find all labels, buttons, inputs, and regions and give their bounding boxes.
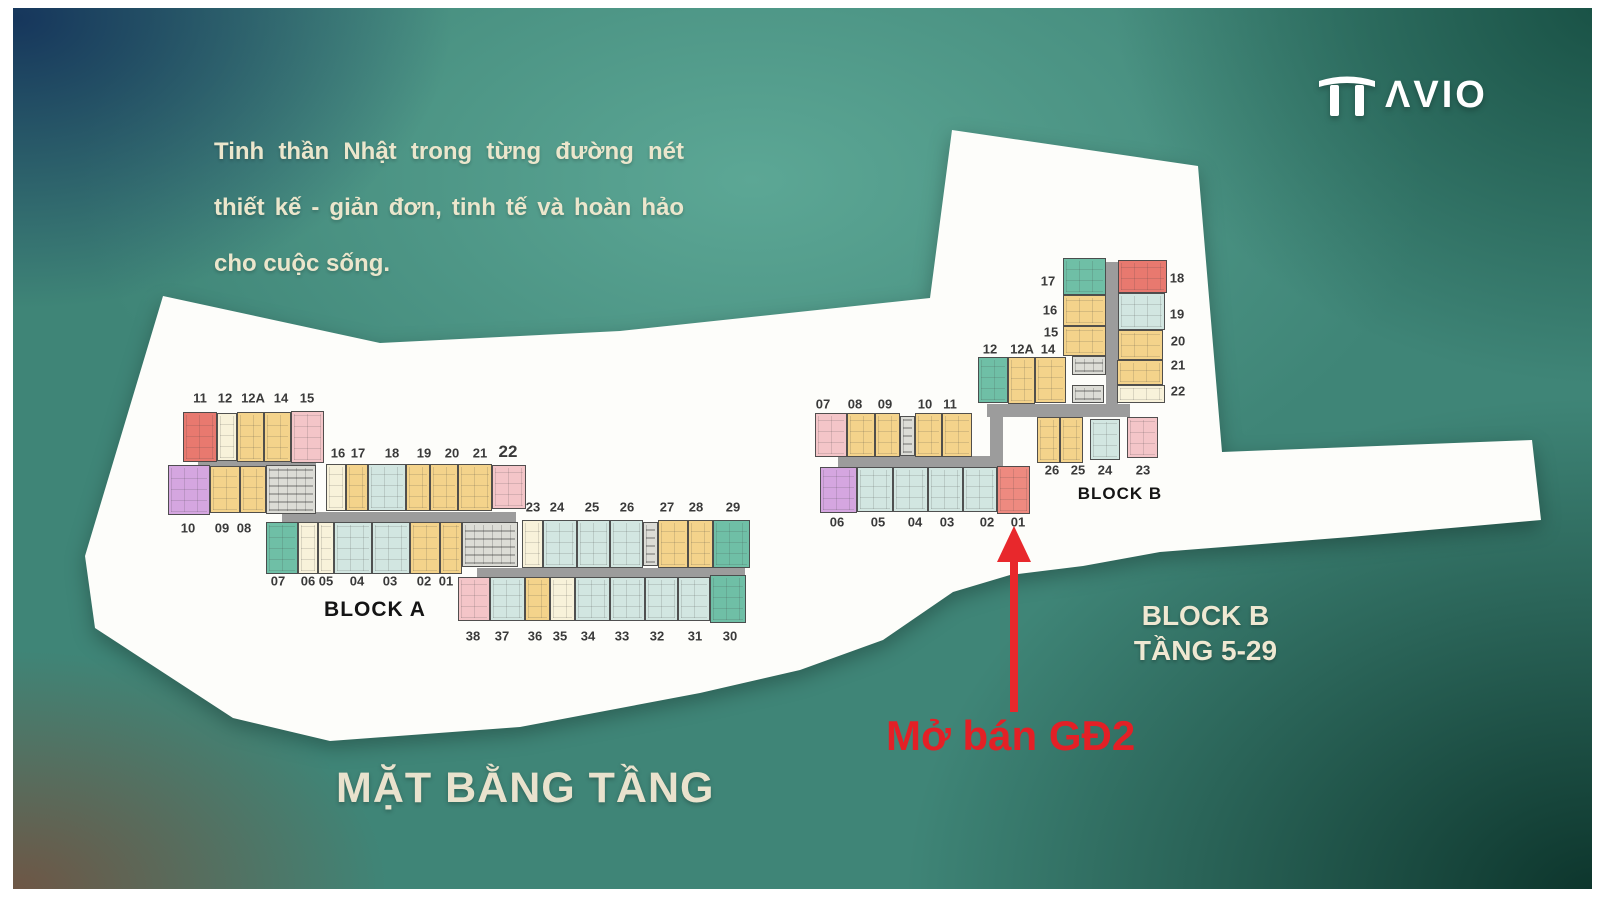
unit-04 bbox=[893, 467, 928, 512]
unit-label-16: 16 bbox=[331, 446, 345, 461]
unit-12A bbox=[237, 412, 264, 462]
unit-label-02: 02 bbox=[417, 574, 431, 589]
unit-20 bbox=[430, 464, 458, 511]
unit-09 bbox=[210, 466, 240, 513]
service-core bbox=[266, 465, 316, 514]
unit-label-33: 33 bbox=[615, 629, 629, 644]
sale-phase-label: Mở bán GĐ2 bbox=[886, 712, 1186, 760]
unit-label-06: 06 bbox=[301, 574, 315, 589]
unit-label-26: 26 bbox=[620, 500, 634, 515]
corridor bbox=[282, 512, 516, 522]
unit-label-29: 29 bbox=[726, 500, 740, 515]
unit-label-31: 31 bbox=[688, 629, 702, 644]
block-title-block-b: BLOCK B bbox=[1078, 484, 1162, 504]
unit-38 bbox=[458, 577, 490, 621]
unit-label-05: 05 bbox=[319, 574, 333, 589]
service-core bbox=[1072, 356, 1106, 375]
unit-12A bbox=[1008, 357, 1035, 404]
unit-label-25: 25 bbox=[585, 500, 599, 515]
unit-14 bbox=[264, 412, 291, 462]
unit-label-15: 15 bbox=[300, 391, 314, 406]
unit-label-08: 08 bbox=[848, 397, 862, 412]
unit-14 bbox=[1035, 357, 1066, 403]
unit-22 bbox=[492, 465, 526, 509]
unit-label-07: 07 bbox=[271, 574, 285, 589]
unit-02 bbox=[963, 467, 997, 512]
unit-34 bbox=[575, 577, 610, 621]
unit-label-22: 22 bbox=[499, 442, 518, 462]
unit-04 bbox=[334, 522, 372, 574]
sale-arrow-icon bbox=[992, 526, 1036, 716]
unit-label-09: 09 bbox=[878, 397, 892, 412]
unit-label-20: 20 bbox=[445, 446, 459, 461]
unit-18 bbox=[368, 464, 406, 511]
unit-label-11: 11 bbox=[193, 391, 207, 406]
service-core bbox=[643, 522, 658, 566]
unit-37 bbox=[490, 577, 525, 621]
unit-11 bbox=[183, 412, 217, 462]
unit-label-24: 24 bbox=[1098, 463, 1112, 478]
unit-26 bbox=[1037, 417, 1060, 463]
unit-label-27: 27 bbox=[660, 500, 674, 515]
unit-label-24: 24 bbox=[550, 500, 564, 515]
unit-label-36: 36 bbox=[528, 629, 542, 644]
unit-label-38: 38 bbox=[466, 629, 480, 644]
unit-label-20: 20 bbox=[1171, 334, 1185, 349]
unit-20 bbox=[1118, 330, 1163, 360]
unit-25 bbox=[577, 520, 610, 568]
unit-30 bbox=[710, 575, 746, 623]
unit-label-23: 23 bbox=[526, 500, 540, 515]
unit-label-12: 12 bbox=[983, 342, 997, 357]
corridor bbox=[990, 415, 1003, 467]
unit-label-37: 37 bbox=[495, 629, 509, 644]
brand-wordmark: ΛVIO bbox=[1385, 74, 1488, 117]
unit-15 bbox=[291, 411, 324, 463]
unit-label-14: 14 bbox=[1041, 342, 1055, 357]
unit-06 bbox=[298, 522, 318, 574]
unit-label-26: 26 bbox=[1045, 463, 1059, 478]
floor-plan-title: MẶT BẰNG TẦNG bbox=[336, 764, 714, 813]
unit-22 bbox=[1117, 385, 1165, 403]
unit-21 bbox=[1117, 360, 1163, 385]
block-b-note-line2: TẦNG 5-29 bbox=[1108, 633, 1303, 668]
block-title-block-a: BLOCK A bbox=[324, 598, 426, 622]
unit-07 bbox=[266, 522, 298, 574]
unit-label-30: 30 bbox=[723, 629, 737, 644]
unit-05 bbox=[318, 522, 334, 574]
unit-32 bbox=[645, 577, 678, 621]
unit-label-15: 15 bbox=[1044, 325, 1058, 340]
unit-label-18: 18 bbox=[385, 446, 399, 461]
unit-label-17: 17 bbox=[351, 446, 365, 461]
unit-25 bbox=[1060, 417, 1083, 463]
unit-28 bbox=[688, 520, 713, 568]
unit-09 bbox=[875, 413, 900, 457]
unit-label-12A: 12A bbox=[1010, 342, 1034, 357]
unit-03 bbox=[372, 522, 410, 574]
unit-12 bbox=[217, 413, 237, 461]
unit-label-19: 19 bbox=[417, 446, 431, 461]
unit-label-01: 01 bbox=[439, 574, 453, 589]
unit-label-09: 09 bbox=[215, 521, 229, 536]
slide: ΛVIO Tinh thần Nhật trong từng đường nét… bbox=[0, 0, 1600, 900]
unit-35 bbox=[550, 577, 575, 621]
unit-19 bbox=[1118, 293, 1165, 330]
unit-08 bbox=[240, 466, 266, 513]
tagline-line2: thiết kế - giản đơn, tinh tế và hoàn hảo bbox=[214, 180, 684, 236]
tagline-line1: Tinh thần Nhật trong từng đường nét bbox=[214, 124, 684, 180]
unit-label-10: 10 bbox=[181, 521, 195, 536]
unit-08 bbox=[847, 413, 875, 457]
unit-36 bbox=[525, 577, 550, 621]
unit-label-14: 14 bbox=[274, 391, 288, 406]
brand-logo: ΛVIO bbox=[1318, 72, 1488, 118]
unit-05 bbox=[857, 467, 893, 512]
unit-23 bbox=[522, 520, 543, 568]
unit-label-12A: 12A bbox=[241, 391, 265, 406]
service-core bbox=[462, 522, 518, 567]
unit-12 bbox=[978, 357, 1008, 403]
unit-label-21: 21 bbox=[1171, 358, 1185, 373]
unit-29 bbox=[713, 520, 750, 568]
unit-label-19: 19 bbox=[1170, 307, 1184, 322]
unit-label-06: 06 bbox=[830, 515, 844, 530]
unit-label-23: 23 bbox=[1136, 463, 1150, 478]
unit-16 bbox=[1063, 295, 1106, 326]
unit-17 bbox=[346, 464, 368, 511]
unit-16 bbox=[326, 464, 346, 511]
torii-gate-icon bbox=[1318, 72, 1376, 118]
unit-03 bbox=[928, 467, 963, 512]
unit-label-16: 16 bbox=[1043, 303, 1057, 318]
unit-label-07: 07 bbox=[816, 397, 830, 412]
unit-01 bbox=[440, 522, 462, 574]
unit-label-08: 08 bbox=[237, 521, 251, 536]
unit-18 bbox=[1118, 260, 1167, 293]
unit-label-21: 21 bbox=[473, 446, 487, 461]
unit-07 bbox=[815, 413, 847, 457]
unit-label-18: 18 bbox=[1170, 271, 1184, 286]
unit-label-10: 10 bbox=[918, 397, 932, 412]
corridor bbox=[987, 404, 1130, 417]
unit-label-22: 22 bbox=[1171, 384, 1185, 399]
unit-19 bbox=[406, 464, 430, 511]
tagline-line3: cho cuộc sống. bbox=[214, 236, 684, 292]
unit-label-28: 28 bbox=[689, 500, 703, 515]
unit-label-04: 04 bbox=[908, 515, 922, 530]
unit-label-11: 11 bbox=[943, 397, 957, 412]
unit-label-35: 35 bbox=[553, 629, 567, 644]
unit-21 bbox=[458, 464, 492, 511]
unit-11 bbox=[942, 413, 972, 457]
service-core bbox=[900, 416, 915, 456]
unit-24 bbox=[543, 520, 577, 568]
unit-24 bbox=[1090, 419, 1120, 460]
unit-27 bbox=[658, 520, 688, 568]
unit-label-03: 03 bbox=[940, 515, 954, 530]
unit-label-32: 32 bbox=[650, 629, 664, 644]
service-core bbox=[1072, 385, 1104, 403]
unit-17 bbox=[1063, 258, 1106, 295]
corridor bbox=[477, 568, 745, 577]
unit-15 bbox=[1063, 326, 1106, 356]
unit-10 bbox=[915, 413, 942, 457]
unit-02 bbox=[410, 522, 440, 574]
unit-31 bbox=[678, 577, 710, 621]
block-b-note-line1: BLOCK B bbox=[1108, 598, 1303, 633]
unit-label-34: 34 bbox=[581, 629, 595, 644]
unit-26 bbox=[610, 520, 643, 568]
tagline: Tinh thần Nhật trong từng đường nét thiế… bbox=[214, 124, 684, 292]
unit-label-25: 25 bbox=[1071, 463, 1085, 478]
unit-label-04: 04 bbox=[350, 574, 364, 589]
unit-label-17: 17 bbox=[1041, 274, 1055, 289]
corridor bbox=[838, 456, 990, 467]
unit-33 bbox=[610, 577, 645, 621]
unit-01 bbox=[997, 466, 1030, 514]
unit-label-12: 12 bbox=[218, 391, 232, 406]
unit-23 bbox=[1127, 417, 1158, 458]
block-b-note: BLOCK B TẦNG 5-29 bbox=[1108, 598, 1303, 668]
unit-label-05: 05 bbox=[871, 515, 885, 530]
unit-06 bbox=[820, 467, 857, 513]
unit-label-03: 03 bbox=[383, 574, 397, 589]
unit-10 bbox=[168, 465, 210, 515]
